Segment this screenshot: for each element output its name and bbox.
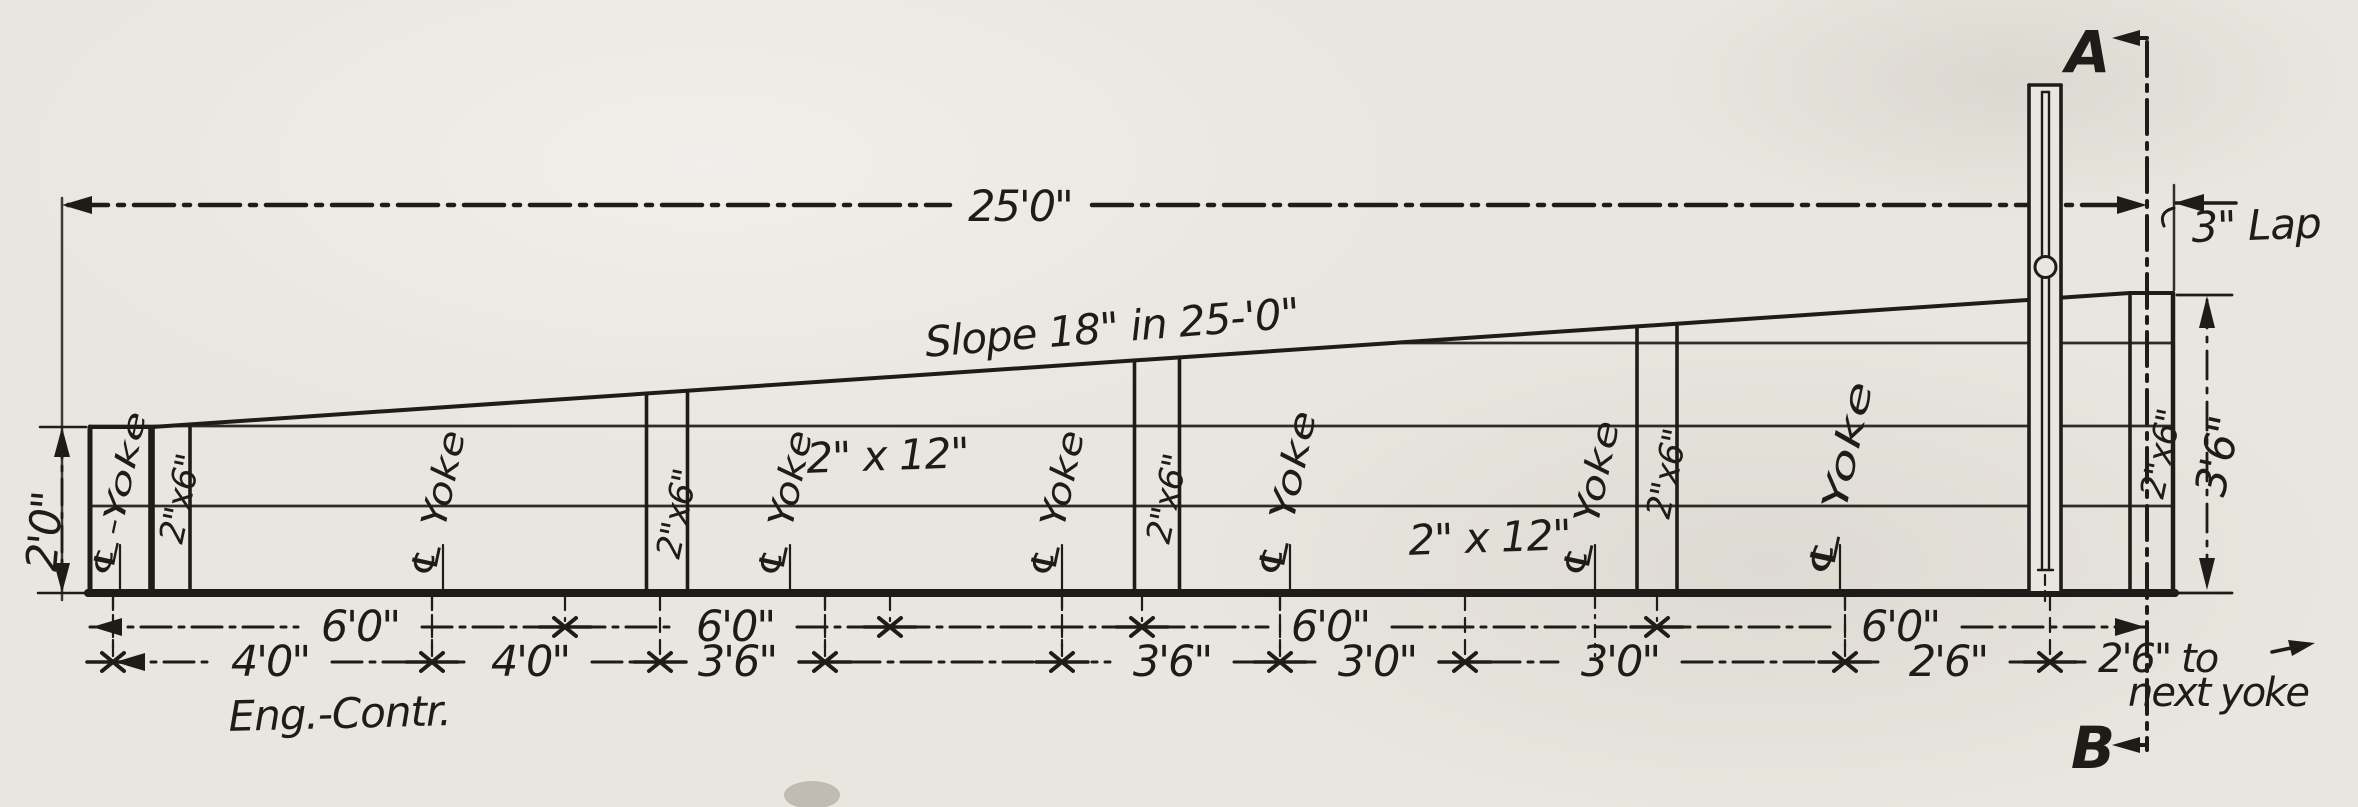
cleat-label-0: 2"x6" — [152, 451, 210, 547]
overall-dimension-label: 25'0" — [968, 182, 1072, 232]
right-arrowhead — [2117, 196, 2147, 214]
yoke-label-0: ℄-Yoke — [85, 408, 154, 581]
lap-leader-hook — [2162, 208, 2174, 226]
dim-label-row1-0: 6'0" — [321, 602, 399, 652]
dim-label-row2-1: 4'0" — [491, 637, 569, 687]
yoke-labels: ℄-Yoke℄ Yoke℄ Yoke℄ Yoke℄ Yoke℄ Yoke℄ Yo… — [85, 378, 1882, 582]
next-yoke-label-2: next yoke — [2128, 670, 2308, 716]
left-height-label: 2'0" — [17, 491, 74, 573]
yoke-label-6: ℄ Yoke — [1801, 378, 1882, 582]
dim-label-row2-5: 3'0" — [1581, 637, 1659, 687]
cleat-label-3: 2"x6" — [1639, 426, 1697, 522]
dim-label-row2-6: 2'6" — [1909, 637, 1987, 687]
section-arrow-bottom — [2112, 737, 2140, 753]
cleat-label-2: 2"x6" — [1139, 451, 1197, 547]
yoke-post — [2029, 85, 2061, 605]
yoke-bolt-hole — [2035, 257, 2056, 278]
section-letter-a: A — [2062, 18, 2111, 86]
credit-note: Eng.-Contr. — [228, 686, 451, 741]
dim-label-row2-2: 3'6" — [698, 637, 776, 687]
dim-label-row2-3: 3'6" — [1133, 637, 1211, 687]
cleat-label-1: 2"x6" — [649, 466, 707, 562]
section-arrow-top — [2112, 30, 2140, 46]
drawing-sheet: 25'0" 3" Lap Slope 18" in 25-'0" A B 2'0… — [0, 0, 2358, 807]
yoke-label-4: ℄ Yoke — [1251, 407, 1325, 582]
section-letter-b: B — [2071, 714, 2115, 782]
next-yoke-arrow — [2272, 640, 2315, 656]
yoke-label-1: ℄ Yoke — [404, 427, 474, 582]
dim-label-row2-4: 3'0" — [1338, 637, 1416, 687]
left-arrowhead — [62, 196, 92, 214]
falsework-elevation-drawing: 25'0" 3" Lap Slope 18" in 25-'0" A B 2'0… — [0, 0, 2358, 807]
yoke-label-2: ℄ Yoke — [751, 427, 821, 582]
dimension-labels: 6'0"6'0"6'0"6'0"4'0"4'0"3'6"3'6"3'0"3'0"… — [231, 602, 1987, 687]
paper-smudge — [784, 781, 840, 807]
dim-arrowhead — [2115, 618, 2145, 636]
dim-label-row2-0: 4'0" — [231, 637, 309, 687]
plank-label-0: 2" x 12" — [806, 428, 970, 483]
yoke-label-3: ℄ Yoke — [1023, 427, 1093, 582]
yoke-label-5: ℄ Yoke — [1556, 417, 1628, 582]
plank-label-1: 2" x 12" — [1408, 510, 1572, 565]
cleat-label-4: 2"x6" — [2133, 406, 2191, 502]
dim-arrowhead — [92, 618, 122, 636]
right-height-label: 3'6" — [2186, 413, 2251, 500]
lap-label: 3" Lap — [2191, 199, 2322, 252]
